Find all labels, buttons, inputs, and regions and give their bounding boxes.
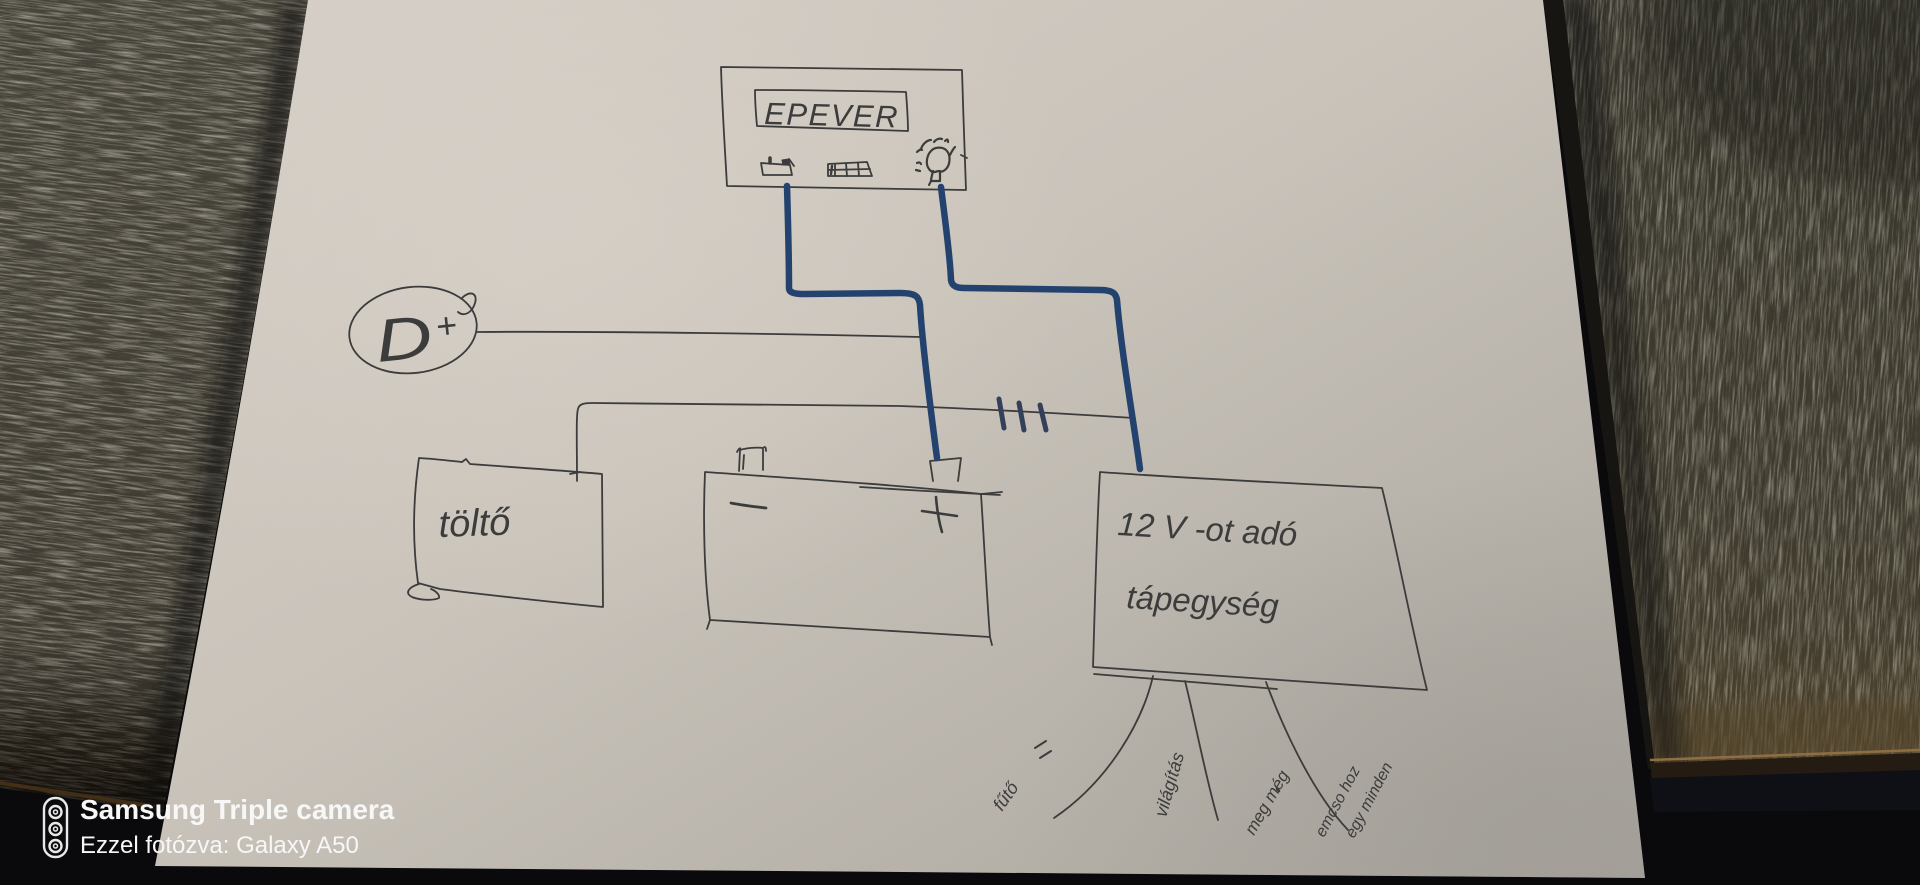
svg-text:+: + [434,304,459,347]
svg-text:EPEVER: EPEVER [764,96,900,135]
svg-text:Samsung Triple camera: Samsung Triple camera [80,794,395,825]
svg-text:D: D [372,302,435,375]
svg-text:töltő: töltő [438,501,512,546]
svg-text:Ezzel fotózva: Galaxy A50: Ezzel fotózva: Galaxy A50 [80,832,359,859]
